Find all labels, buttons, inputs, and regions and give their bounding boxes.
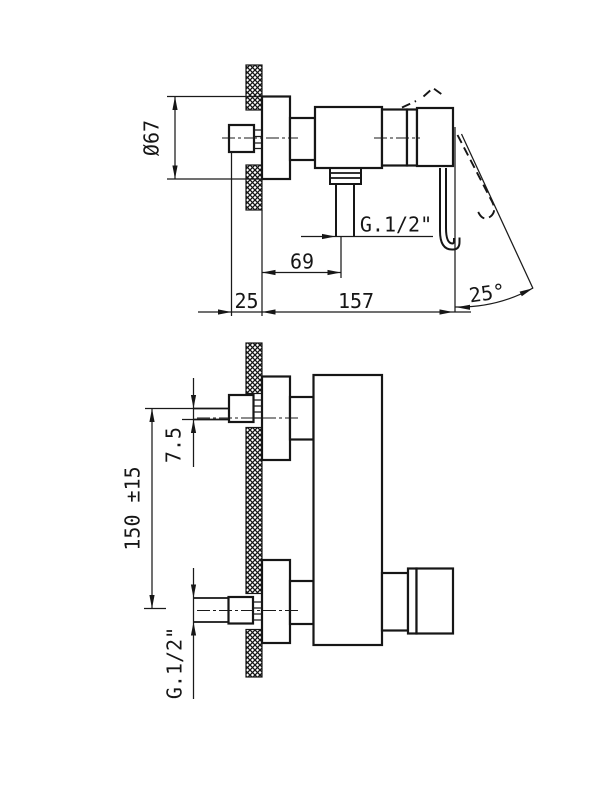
stem bbox=[290, 118, 315, 160]
wall-section-top bbox=[246, 343, 262, 394]
thread-label-front: G.1/2" bbox=[163, 627, 187, 699]
mixer-body-front bbox=[314, 375, 383, 645]
outlet-band bbox=[408, 569, 417, 634]
wall-section-bottom bbox=[246, 630, 262, 678]
arrow-down bbox=[191, 395, 196, 409]
dim-centre-distance-label: 150 ±15 bbox=[121, 466, 145, 550]
dim-wall-depth-label: 25 bbox=[234, 289, 258, 313]
wall-section-upper bbox=[246, 65, 262, 110]
stem-lower bbox=[290, 581, 314, 624]
lever-angle-extension bbox=[462, 134, 534, 289]
dim-diameter-label: Ø67 bbox=[140, 120, 164, 156]
thread-ticks-upper bbox=[254, 400, 262, 418]
lever-open-phantom bbox=[458, 135, 495, 218]
escutcheon-lower bbox=[262, 560, 290, 643]
mixer-body bbox=[315, 107, 382, 168]
arrow-up bbox=[172, 97, 177, 111]
technical-drawing: Ø67 69 G.1/2" 25 157 25° bbox=[0, 0, 615, 800]
outlet-step bbox=[382, 573, 408, 631]
thread-ticks bbox=[254, 130, 262, 149]
wall-section-middle bbox=[246, 428, 262, 594]
outlet-cap bbox=[417, 569, 454, 634]
arrow-up bbox=[191, 622, 196, 636]
outlet-nut bbox=[330, 168, 361, 184]
dim-eccentric-offset-label: 7.5 bbox=[162, 427, 186, 463]
handle-cap bbox=[417, 108, 453, 166]
outlet-pipe bbox=[336, 184, 354, 237]
dim-outlet-offset-label: 69 bbox=[290, 250, 314, 274]
arrow-left bbox=[262, 270, 276, 275]
dim-length-label: 157 bbox=[338, 289, 374, 313]
lever-open-chevron bbox=[424, 88, 445, 97]
drawing-canvas: Ø67 69 G.1/2" 25 157 25° bbox=[0, 0, 615, 800]
thread-label: G.1/2" bbox=[360, 213, 432, 237]
arrow-right bbox=[218, 309, 232, 314]
arrow-right bbox=[440, 309, 454, 314]
outlet-nut-lines bbox=[330, 173, 361, 178]
dim-handle-angle-label: 25° bbox=[467, 279, 506, 308]
arrow-left bbox=[457, 305, 471, 310]
arrow-up-right bbox=[520, 288, 533, 296]
side-view: Ø67 69 G.1/2" 25 157 25° bbox=[140, 65, 534, 316]
lever-outer-edge bbox=[440, 168, 460, 250]
front-view: 150 ±15 7.5 G.1/2" bbox=[121, 343, 454, 699]
arrow-up bbox=[191, 420, 196, 434]
arrow-down bbox=[172, 166, 177, 180]
arrow-right bbox=[328, 270, 342, 275]
wall-section-lower bbox=[246, 165, 262, 210]
arrow-right bbox=[322, 234, 336, 239]
arrow-down bbox=[149, 595, 154, 609]
arrow-left bbox=[262, 309, 276, 314]
lever-inner-edge bbox=[446, 168, 454, 244]
arrow-up bbox=[149, 409, 154, 423]
arrow-down bbox=[191, 585, 196, 599]
lever-open-dash bbox=[402, 101, 416, 108]
